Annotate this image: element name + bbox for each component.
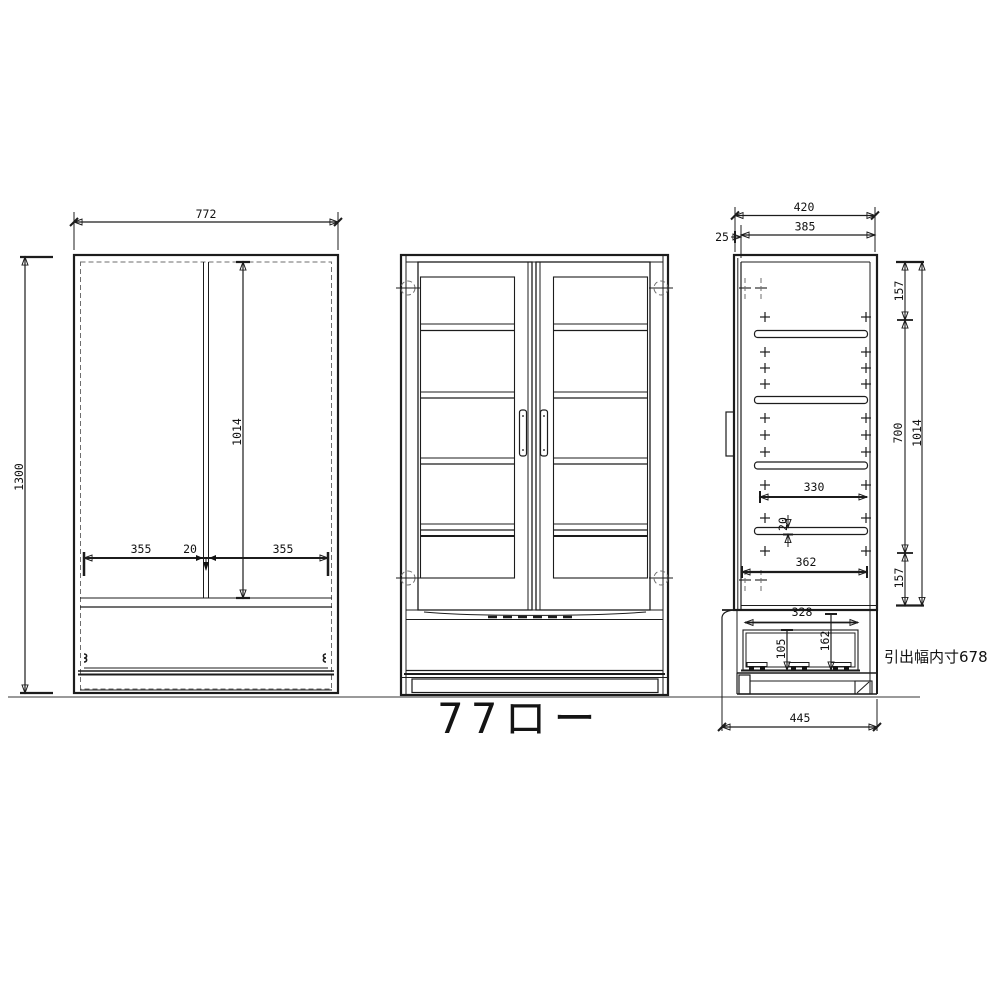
side-view: 330 20 362 328 [715, 200, 988, 731]
dim-interior-height: 1014 [230, 262, 250, 598]
drawer-side-section: 328 162 105 [722, 605, 877, 673]
dim-label-700: 700 [891, 423, 905, 444]
dim-label-355-right: 355 [273, 542, 294, 556]
drawer-slide-rails [747, 663, 851, 670]
dim-openings: 355 20 355 [84, 542, 328, 576]
drawer-box-inner [746, 633, 855, 667]
dim-label-20: 20 [776, 517, 790, 531]
dim-label-157-bottom: 157 [892, 568, 906, 589]
dim-label-362: 362 [796, 555, 817, 569]
base-recess [412, 679, 658, 693]
dim-label-330: 330 [804, 480, 825, 494]
shelf-lines [421, 324, 647, 536]
hinge-marks [396, 281, 673, 585]
dim-label-20: 20 [183, 542, 197, 556]
right-door-glass [554, 277, 648, 578]
dim-shelf-depth: 330 [760, 480, 867, 503]
base [401, 678, 668, 693]
dim-label-162: 162 [818, 631, 832, 652]
dim-label-25: 25 [715, 230, 729, 244]
technical-drawing-sheet: 772 1300 1014 355 20 355 [0, 0, 1000, 1000]
dim-label-420: 420 [794, 200, 815, 214]
cabinet-outline [74, 255, 338, 693]
dim-label-355-left: 355 [131, 542, 152, 556]
dim-depths-top: 420 385 25 [715, 200, 879, 258]
front-door-view [396, 255, 673, 695]
dim-label-385: 385 [795, 220, 816, 234]
dim-overall-width: 772 [70, 207, 342, 250]
dim-label-772: 772 [196, 207, 217, 221]
dim-label-105: 105 [774, 639, 788, 660]
dim-label-1014-side: 1014 [910, 419, 924, 447]
dim-shelf-thickness: 20 [776, 515, 793, 547]
dim-label-445: 445 [790, 711, 811, 725]
front-structure-view: 772 1300 1014 355 20 355 [12, 207, 342, 693]
left-door-glass [421, 277, 515, 578]
drawer-front [404, 610, 665, 674]
cabinet-outline [401, 255, 668, 695]
product-title: 77ロー [437, 694, 602, 743]
dim-label-328: 328 [792, 605, 813, 619]
drawer-groove-curve [424, 612, 646, 615]
hidden-inner-outline [81, 262, 332, 689]
drawer-box [743, 630, 858, 670]
drawer-lock-mark [323, 654, 326, 662]
door-handle-side [726, 412, 734, 456]
dim-label-1300: 1300 [12, 463, 26, 491]
shelves-side [755, 331, 868, 535]
drawer-lock-mark [84, 654, 87, 662]
dim-heights-right: 157 700 1014 157 [891, 262, 924, 606]
dim-label-1014: 1014 [230, 418, 244, 446]
dim-label-157-top: 157 [892, 281, 906, 302]
drawer-width-annotation: 引出幅内寸678 [884, 648, 988, 666]
cabinet-drawing: 772 1300 1014 355 20 355 [0, 0, 1000, 1000]
dim-overall-height: 1300 [12, 257, 53, 693]
front-leg [739, 675, 750, 694]
